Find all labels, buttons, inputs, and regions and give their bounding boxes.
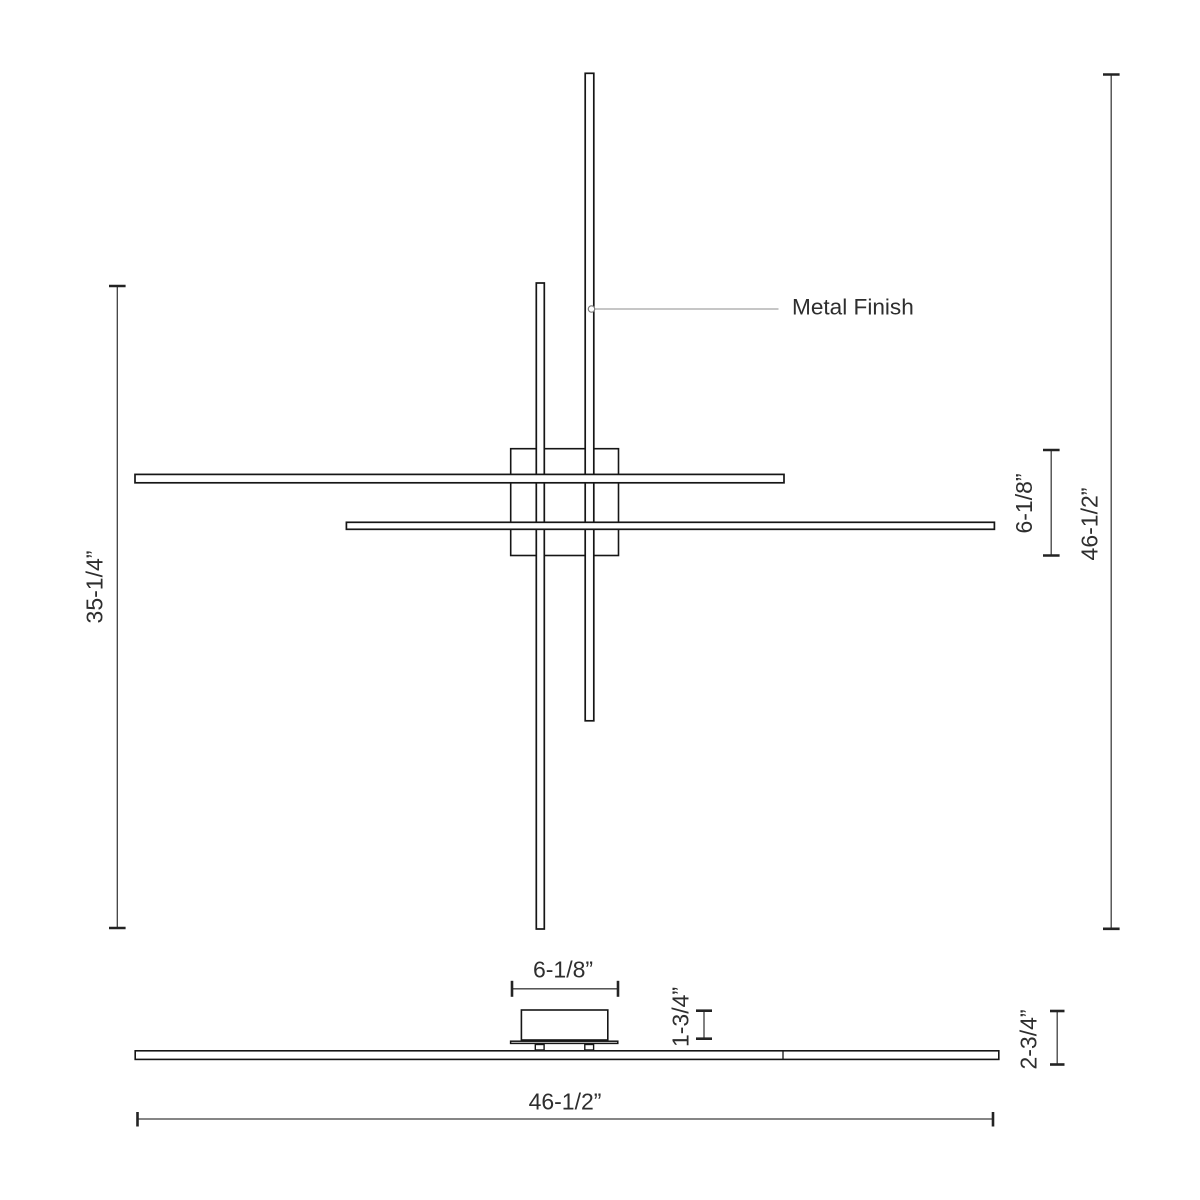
svg-text:46-1/2”: 46-1/2” [529,1088,602,1114]
svg-text:Metal Finish: Metal Finish [792,295,914,320]
svg-text:6-1/8”: 6-1/8” [1011,473,1037,533]
svg-text:2-3/4”: 2-3/4” [1016,1009,1042,1069]
svg-text:1-3/4”: 1-3/4” [668,987,694,1047]
svg-text:46-1/2”: 46-1/2” [1077,488,1103,561]
svg-text:6-1/8”: 6-1/8” [533,957,593,983]
svg-text:35-1/4”: 35-1/4” [82,551,108,624]
